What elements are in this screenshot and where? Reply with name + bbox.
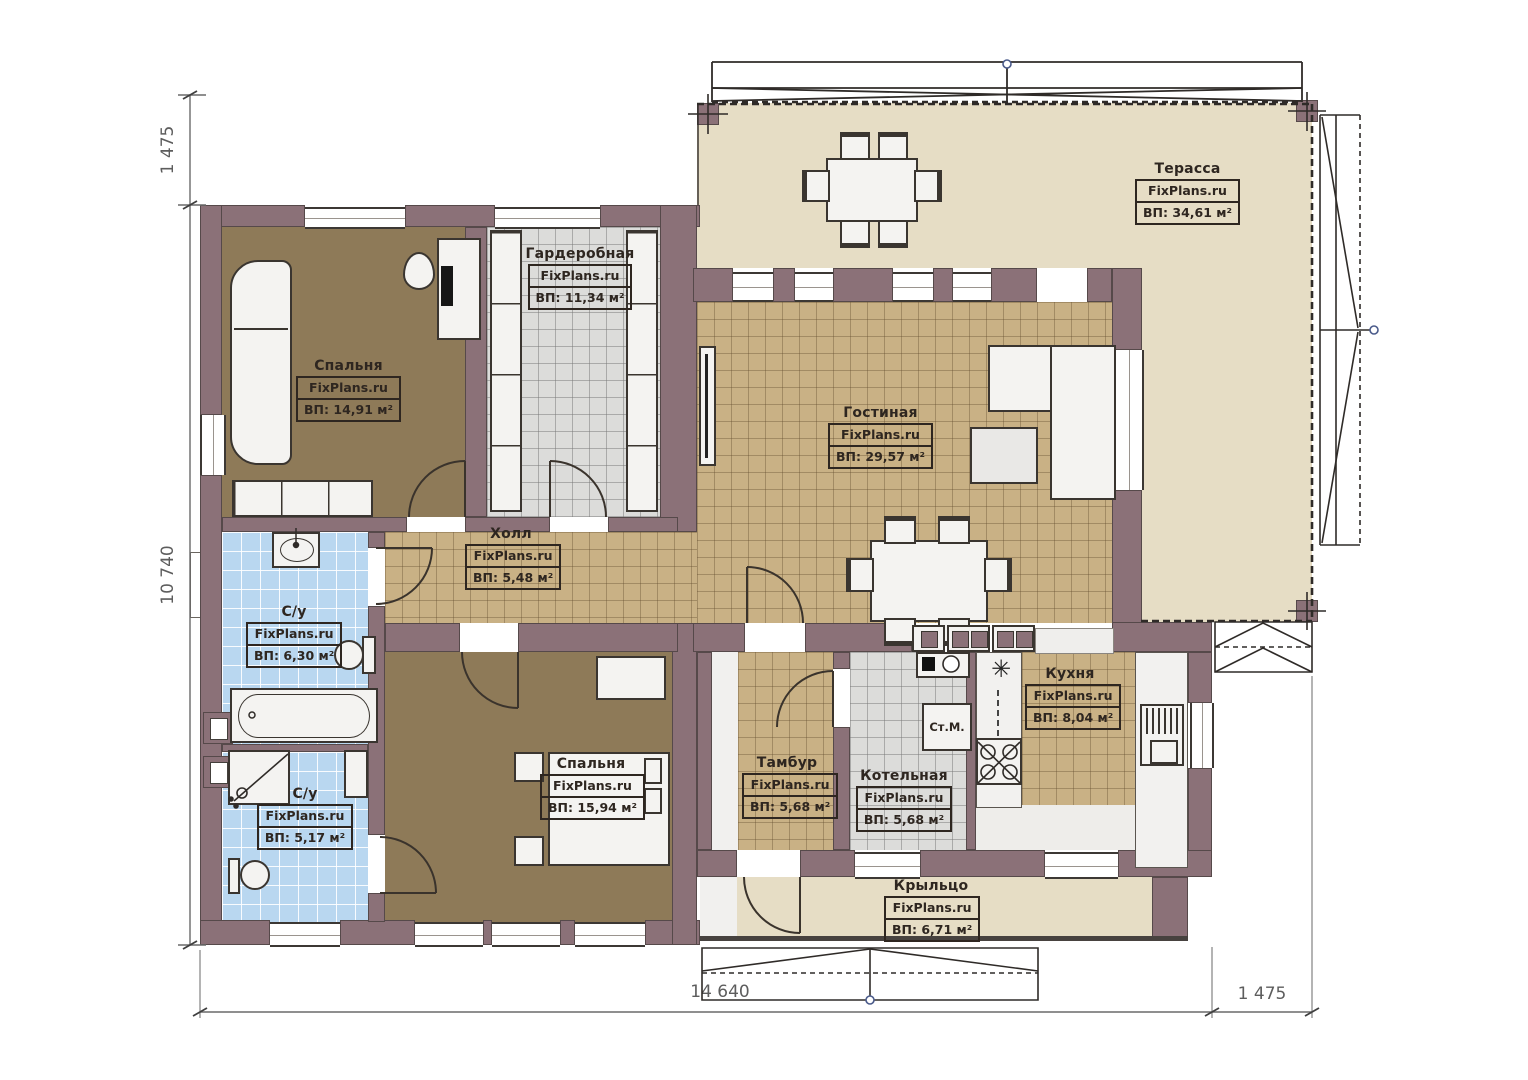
wall-segment (966, 652, 976, 850)
room-info-box: FixPlans.ru ВП: 14,91 м² (296, 376, 401, 422)
wall-segment (693, 623, 745, 652)
chair (802, 170, 830, 202)
wall-segment (385, 623, 460, 652)
brand-watermark: FixPlans.ru (744, 775, 836, 797)
wall-segment (833, 652, 850, 669)
window (495, 207, 600, 229)
room-label-terrace: Терасса FixPlans.ru ВП: 34,61 м² (1130, 161, 1245, 225)
window (1190, 703, 1214, 768)
window (575, 922, 645, 947)
room-info-box: FixPlans.ru ВП: 8,04 м² (1025, 684, 1121, 730)
wall-segment (200, 205, 222, 415)
wall-segment (672, 623, 697, 945)
dresser (596, 656, 666, 700)
room-area: ВП: 5,48 м² (467, 568, 559, 588)
bar-stool (971, 631, 988, 648)
window (492, 922, 560, 947)
floor-porch-niche (700, 877, 737, 936)
tv-screen (705, 354, 708, 458)
desk-monitor (441, 266, 453, 306)
window (893, 272, 933, 302)
room-area: ВП: 5,17 м² (259, 828, 351, 848)
wall-segment (697, 850, 737, 877)
room-name: Крыльцо (884, 878, 978, 894)
room-name: Терасса (1130, 161, 1245, 177)
room-info-box: FixPlans.ru ВП: 34,61 м² (1135, 179, 1240, 225)
terrace-bottom-stair (1215, 622, 1312, 672)
brand-watermark: FixPlans.ru (1027, 686, 1119, 708)
room-label-kitchen: Кухня FixPlans.ru ВП: 8,04 м² (1025, 666, 1115, 730)
dimension-bottom-right: 1 475 (1224, 984, 1300, 1004)
room-info-box: FixPlans.ru ВП: 5,17 м² (257, 804, 353, 850)
room-label-bedroom-1: Спальня FixPlans.ru ВП: 14,91 м² (296, 358, 401, 422)
room-name: Гостиная (828, 405, 933, 421)
room-name: Тамбур (742, 755, 832, 771)
room-area: ВП: 14,91 м² (298, 400, 399, 420)
cabinet-row (232, 480, 373, 517)
bar-stool (921, 631, 938, 648)
door-opening (833, 669, 850, 727)
room-name: Спальня (540, 756, 642, 772)
room-label-wardrobe: Гардеробная FixPlans.ru ВП: 11,34 м² (524, 246, 636, 310)
wall-segment (693, 268, 733, 302)
coffee-table (970, 427, 1038, 484)
room-name: Гардеробная (524, 246, 636, 262)
desk-chair (403, 252, 435, 290)
wall-segment (920, 850, 1045, 877)
brand-watermark: FixPlans.ru (1137, 181, 1238, 203)
terrace-table (826, 158, 918, 222)
window (855, 852, 920, 879)
room-name: С/у (252, 786, 358, 802)
wall-segment (1152, 877, 1188, 937)
room-info-box: FixPlans.ru ВП: 5,68 м² (856, 786, 952, 832)
floor-vestibule (738, 652, 833, 850)
pillow (644, 758, 662, 784)
brand-watermark: FixPlans.ru (858, 788, 950, 810)
bar-stool (952, 631, 969, 648)
wall-segment (1087, 268, 1112, 302)
roof-truss (712, 60, 1302, 102)
door-opening (460, 623, 518, 652)
sink-basin (280, 538, 314, 562)
terrace-post (1296, 600, 1318, 622)
chair (840, 132, 870, 160)
room-label-living-room: Гостиная FixPlans.ru ВП: 29,57 м² (828, 405, 933, 469)
room-info-box: FixPlans.ru ВП: 11,34 м² (528, 264, 633, 310)
wall-segment (991, 268, 1037, 302)
dimension-left-top: 1 475 (158, 120, 178, 180)
room-label-vestibule: Тамбур FixPlans.ru ВП: 5,68 м² (742, 755, 832, 819)
chair (846, 558, 874, 592)
pillow (644, 788, 662, 814)
room-name: Котельная (853, 768, 955, 784)
brand-watermark: FixPlans.ru (248, 624, 340, 646)
room-label-bedroom-2: Спальня FixPlans.ru ВП: 15,94 м² (540, 756, 642, 820)
room-info-box: FixPlans.ru ВП: 5,48 м² (465, 544, 561, 590)
room-area: ВП: 15,94 м² (542, 798, 643, 818)
toilet-tank (362, 636, 376, 674)
nightstand (514, 836, 544, 866)
fridge-vents (1146, 708, 1178, 734)
wall-segment (833, 268, 893, 302)
window (200, 415, 226, 475)
window (953, 272, 991, 302)
room-info-box: FixPlans.ru ВП: 6,71 м² (884, 896, 980, 942)
room-area: ВП: 11,34 м² (530, 288, 631, 308)
door-opening (368, 548, 385, 606)
wall-segment (773, 268, 795, 302)
terrace-side-stair (1320, 115, 1378, 545)
terrace-post (697, 103, 719, 125)
wall-segment (933, 268, 953, 302)
wall-segment (697, 652, 712, 850)
chimney-stub-inner (210, 718, 228, 740)
room-info-box: FixPlans.ru ВП: 29,57 м² (828, 423, 933, 469)
brand-watermark: FixPlans.ru (530, 266, 631, 288)
chair (884, 516, 916, 544)
dishwasher-dashed (997, 690, 1001, 736)
window (1047, 852, 1118, 879)
dining-table (870, 540, 988, 622)
floor-plan-canvas: ✳ Ст.М. Терасса FixPlans.ru ВП: 34,61 м²… (0, 0, 1528, 1080)
room-area: ВП: 5,68 м² (858, 810, 950, 830)
wall-segment (560, 920, 575, 945)
door-opening (550, 517, 608, 532)
room-area: ВП: 8,04 м² (1027, 708, 1119, 728)
wall-segment (483, 920, 492, 945)
room-info-box: FixPlans.ru ВП: 6,30 м² (246, 622, 342, 668)
chair (878, 220, 908, 248)
floor-terrace-right (1140, 268, 1312, 622)
window (733, 272, 773, 302)
room-area: ВП: 29,57 м² (830, 447, 931, 467)
wall-segment (1112, 622, 1212, 652)
room-label-porch: Крыльцо FixPlans.ru ВП: 6,71 м² (884, 878, 978, 942)
wall-segment (660, 205, 697, 532)
fridge-inner (1150, 740, 1178, 764)
chair (878, 132, 908, 160)
room-name: Кухня (1025, 666, 1115, 682)
chair (840, 220, 870, 248)
washing-machine-label: Ст.М. (922, 720, 972, 734)
room-info-box: FixPlans.ru ВП: 5,68 м² (742, 773, 838, 819)
room-name: Спальня (296, 358, 401, 374)
chimney-stub-inner (210, 762, 228, 784)
kitchen-symbol-icon: ✳ (986, 654, 1016, 684)
dimension-left-main: 10 740 (158, 541, 178, 609)
dimension-bottom-main: 14 640 (660, 982, 780, 1002)
wall-segment (368, 893, 385, 922)
chair (914, 170, 942, 202)
room-name: Холл (465, 526, 557, 542)
window (1114, 350, 1144, 490)
door-opening (368, 835, 385, 893)
terrace-door-opening (1037, 272, 1087, 298)
wall-segment (405, 205, 495, 227)
brand-watermark: FixPlans.ru (259, 806, 351, 828)
brand-watermark: FixPlans.ru (542, 776, 643, 798)
room-label-boiler-room: Котельная FixPlans.ru ВП: 5,68 м² (853, 768, 955, 832)
toilet-tank (228, 858, 240, 894)
wall-segment (368, 532, 385, 548)
door-opening (407, 517, 465, 532)
wall-segment (200, 475, 222, 945)
room-area: ВП: 5,68 м² (744, 797, 836, 817)
floor-vestibule-niche (712, 652, 738, 850)
brand-watermark: FixPlans.ru (830, 425, 931, 447)
boiler-black-box (922, 657, 935, 671)
brand-watermark: FixPlans.ru (467, 546, 559, 568)
window (415, 922, 483, 947)
brand-watermark: FixPlans.ru (298, 378, 399, 400)
wall-segment (200, 920, 270, 945)
room-area: ВП: 34,61 м² (1137, 203, 1238, 223)
room-name: С/у (246, 604, 342, 620)
counter-pass (1035, 628, 1114, 654)
room-label-hall: Холл FixPlans.ru ВП: 5,48 м² (465, 526, 557, 590)
window (795, 272, 833, 302)
bed (230, 260, 292, 465)
window (270, 922, 340, 947)
room-label-bathroom-1: С/у FixPlans.ru ВП: 6,30 м² (246, 604, 342, 668)
stove (976, 738, 1022, 785)
window (305, 207, 405, 229)
brand-watermark: FixPlans.ru (886, 898, 978, 920)
bar-stool (1016, 631, 1033, 648)
bed-divider (234, 328, 288, 330)
bathtub-inner (238, 694, 370, 738)
terrace-post (1296, 100, 1318, 122)
wall-segment (800, 850, 855, 877)
bar-stool (997, 631, 1014, 648)
wall-segment (608, 517, 678, 532)
door-opening (745, 623, 805, 652)
toilet-bowl (240, 860, 270, 890)
wall-segment (340, 920, 415, 945)
wall-segment (1112, 268, 1142, 350)
wardrobe-cabinets (490, 230, 522, 512)
room-area: ВП: 6,71 м² (886, 920, 978, 940)
wall-segment (222, 517, 407, 532)
room-label-bathroom-2: С/у FixPlans.ru ВП: 5,17 м² (252, 786, 358, 850)
sofa (1050, 345, 1116, 500)
room-info-box: FixPlans.ru ВП: 15,94 м² (540, 774, 645, 820)
chair (984, 558, 1012, 592)
wall-segment (1188, 652, 1212, 703)
wall-segment (518, 623, 678, 652)
room-area: ВП: 6,30 м² (248, 646, 340, 666)
door-opening (737, 850, 800, 877)
chair (938, 516, 970, 544)
